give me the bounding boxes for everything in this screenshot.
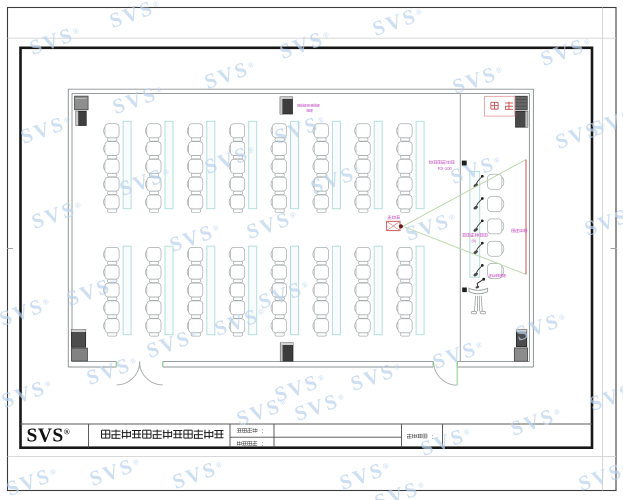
svg-text:(5): (5)	[472, 238, 478, 243]
svg-text:SVS®: SVS®	[27, 426, 71, 447]
